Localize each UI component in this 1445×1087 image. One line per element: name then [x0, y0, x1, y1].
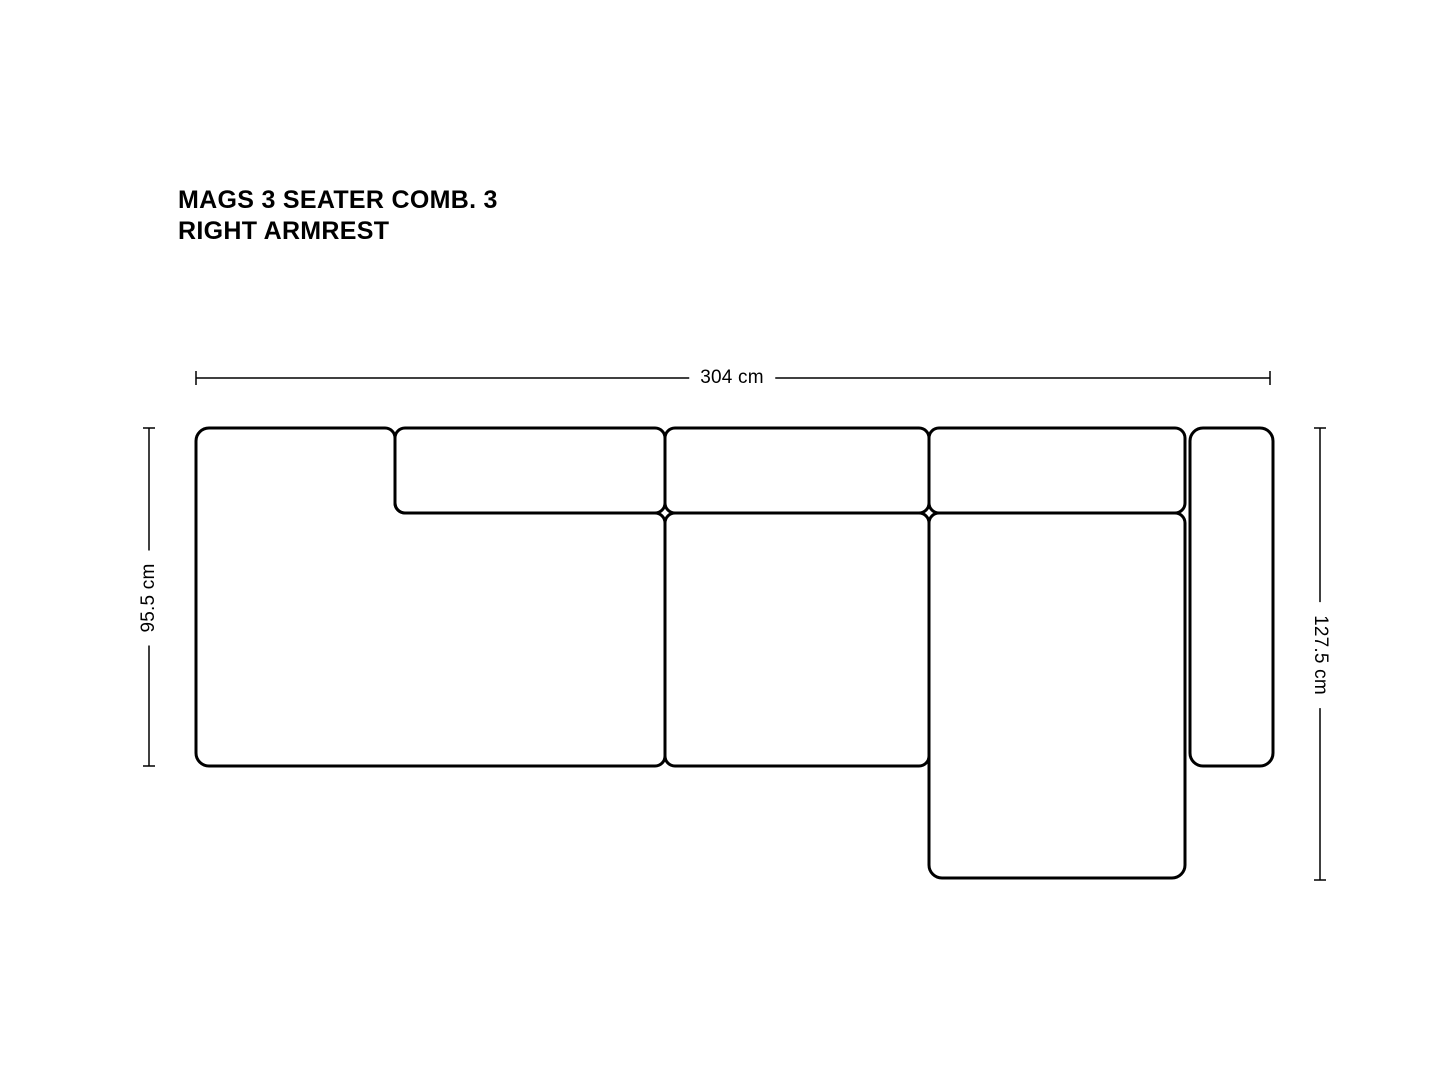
backrest-cushion-right-outline — [929, 428, 1185, 513]
width-dimension-label: 304 cm — [689, 367, 775, 389]
left-seat-module-outline — [196, 428, 665, 766]
sofa-outline-drawing — [0, 0, 1445, 1087]
middle-seat-module-outline — [665, 513, 929, 766]
right-armrest-outline — [1190, 428, 1273, 766]
sofa-modules — [196, 428, 1273, 878]
depth-dimension-label: 95.5 cm — [138, 551, 160, 646]
backrest-cushion-middle-outline — [665, 428, 929, 513]
backrest-cushion-left-outline — [395, 428, 665, 513]
dimension-lines — [143, 371, 1326, 880]
chaise-depth-dimension-label: 127.5 cm — [1309, 602, 1331, 708]
chaise-module-outline — [929, 513, 1185, 878]
sofa-dimension-diagram: MAGS 3 SEATER COMB. 3 RIGHT ARMREST — [0, 0, 1445, 1087]
